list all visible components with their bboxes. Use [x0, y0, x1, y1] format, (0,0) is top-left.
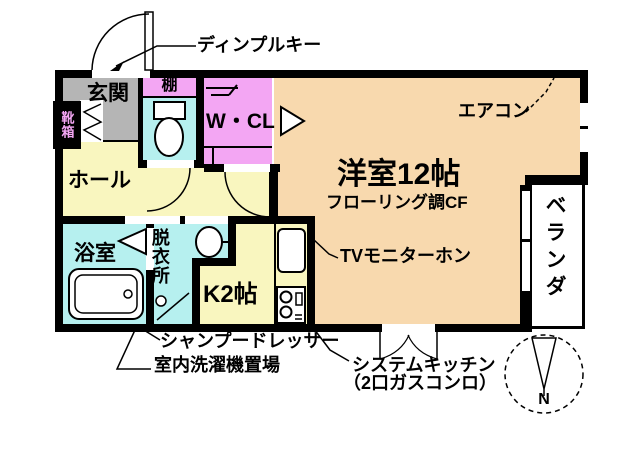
veranda-label: ベランダ: [543, 194, 565, 302]
shampoo-dresser-label: シャンプードレッサー: [160, 332, 339, 351]
kitchen-label: K2帖: [203, 282, 258, 307]
tv-monitor-label: TVモニターホン: [340, 247, 471, 266]
closet-door-icon: [281, 107, 304, 135]
flooring-label: フローリング調CF: [326, 194, 468, 212]
toilet-icon: [154, 102, 185, 156]
entry-step-icon: [84, 104, 101, 140]
western-room-label: 洋室12帖: [337, 159, 460, 191]
toilet-shelf-label: 棚: [143, 78, 196, 95]
dressing-room-label: 脱衣所: [150, 228, 169, 285]
washing-machine-icon: [156, 293, 189, 320]
gas-stove-icon: [277, 287, 305, 323]
bathroom-label: 浴室: [74, 243, 116, 265]
washbasin-icon: [196, 227, 231, 257]
toilet-door-arc: [147, 168, 190, 211]
bath-door-icon: [119, 229, 146, 254]
hall-door-arc: [225, 172, 270, 217]
aircon-leader: [526, 78, 554, 112]
bathtub-icon: [69, 269, 143, 319]
washer-space-leader: [117, 330, 151, 369]
system-kitchen-label-2: （2口ガスコンロ）: [343, 374, 497, 393]
closet-hanger-icon: [206, 85, 238, 95]
hall-label: ホール: [68, 170, 131, 192]
compass-north-label: N: [533, 392, 555, 409]
aircon-label: エアコン: [458, 102, 530, 121]
floor-plan: 靴箱: [0, 0, 640, 456]
tv-monitor-leader: [313, 239, 338, 258]
entrance-door-icon: [92, 12, 153, 70]
kitchen-sink-icon: [278, 229, 305, 272]
walk-in-closet-label: W・CL: [206, 111, 275, 133]
dimple-key-label: ディンプルキー: [197, 36, 321, 55]
shampoo-dresser-leader: [139, 327, 160, 340]
genkan-label: 玄関: [87, 83, 129, 105]
washer-space-label: 室内洗濯機置場: [154, 356, 280, 375]
